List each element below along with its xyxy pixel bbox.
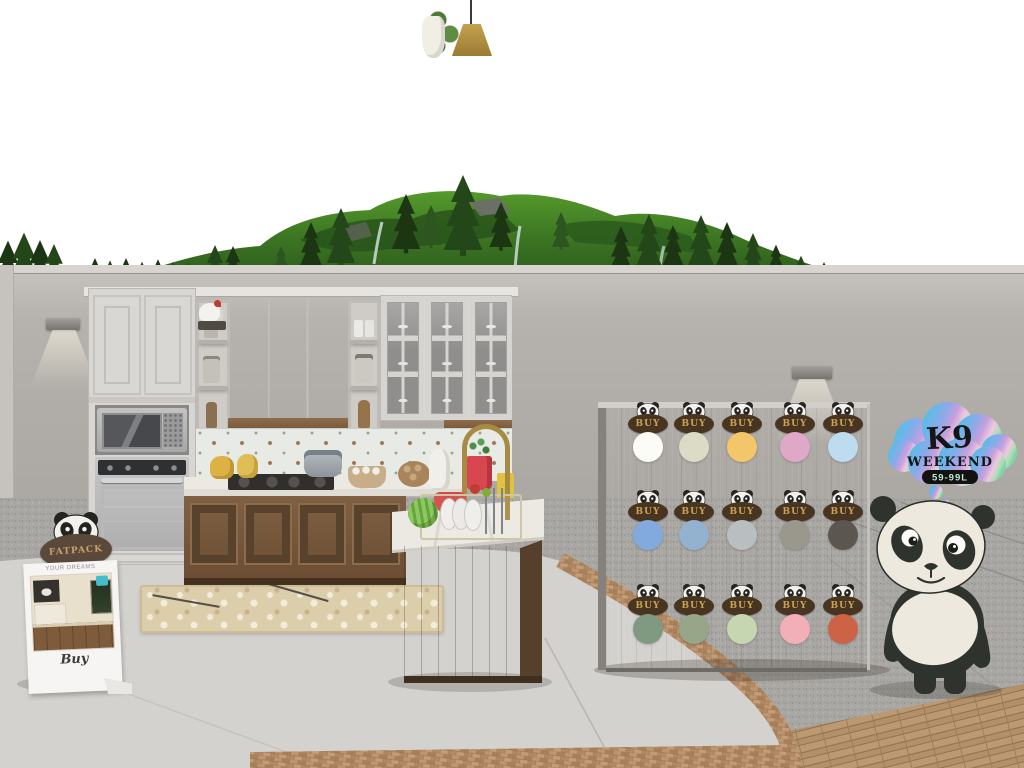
shelf-amber-bottle xyxy=(358,400,370,428)
buy-button-label: BUY xyxy=(730,507,755,517)
swatch-cell-3-3: BUY xyxy=(719,583,765,649)
buy-button-label: BUY xyxy=(636,601,661,611)
fatpack-badge-label: FATPACK xyxy=(49,544,104,558)
buy-button-label: BUY xyxy=(783,419,808,429)
buy-button-label: BUY xyxy=(831,601,856,611)
swatch-cell-1-5: BUY xyxy=(820,401,866,467)
board-left-edge xyxy=(598,404,606,670)
buy-button[interactable]: BUY xyxy=(674,414,714,434)
swatch-cell-2-3: BUY xyxy=(719,489,765,555)
vendor-buy-label[interactable]: Buy xyxy=(27,650,122,669)
buy-button-label: BUY xyxy=(636,507,661,517)
white-pitcher xyxy=(429,449,450,490)
shelf-crock xyxy=(355,354,373,383)
color-swatch[interactable] xyxy=(828,614,858,644)
wall-top-edge xyxy=(0,265,1024,274)
island-base xyxy=(404,546,520,678)
k9-title: K9 xyxy=(925,420,974,457)
swatch-cell-3-1: BUY xyxy=(625,583,671,649)
rooster-comb xyxy=(214,300,221,307)
yellow-canister xyxy=(210,456,234,479)
panda-mascot xyxy=(856,490,1018,696)
shelf-canister xyxy=(203,356,220,383)
buy-button[interactable]: BUY xyxy=(722,414,762,434)
swatch-cell-1-2: BUY xyxy=(671,401,717,467)
color-swatch[interactable] xyxy=(780,432,810,462)
island-side xyxy=(520,540,542,678)
hanging-white-jug xyxy=(422,16,445,58)
photo-badge xyxy=(96,575,108,586)
vendor-photo xyxy=(31,573,114,650)
microwave-niche xyxy=(95,405,189,455)
color-swatch[interactable] xyxy=(679,520,709,550)
buy-button-label: BUY xyxy=(831,419,856,429)
buy-button[interactable]: BUY xyxy=(722,502,762,522)
microwave xyxy=(97,408,187,452)
microwave-window xyxy=(102,413,162,449)
pantry-door-right xyxy=(144,295,192,395)
oven-handle xyxy=(101,478,183,483)
hanging-cord xyxy=(470,0,472,26)
swatch-cell-2-1: BUY xyxy=(625,489,671,555)
buy-button-label: BUY xyxy=(783,601,808,611)
cooking-pot xyxy=(304,450,342,477)
oven-control-panel xyxy=(98,460,186,475)
buy-button[interactable]: BUY xyxy=(628,596,668,616)
color-swatch[interactable] xyxy=(828,520,858,550)
buy-button[interactable]: BUY xyxy=(628,414,668,434)
toe-kick xyxy=(184,578,406,585)
glass-door xyxy=(426,297,468,419)
buy-button[interactable]: BUY xyxy=(775,414,815,434)
buy-button-label: BUY xyxy=(682,601,707,611)
bread-basket xyxy=(398,461,430,487)
color-swatch[interactable] xyxy=(727,520,757,550)
swatch-cell-1-1: BUY xyxy=(625,401,671,467)
corner-shelf-right xyxy=(348,300,380,432)
green-melon xyxy=(408,498,438,528)
color-swatch[interactable] xyxy=(727,432,757,462)
green-apple xyxy=(482,488,491,497)
color-swatch[interactable] xyxy=(828,432,858,462)
swatch-cell-3-2: BUY xyxy=(671,583,717,649)
color-swatch[interactable] xyxy=(633,432,663,462)
buy-button-label: BUY xyxy=(730,419,755,429)
photo-wall-art xyxy=(33,580,60,603)
buy-button-label: BUY xyxy=(783,507,808,517)
egg-basket xyxy=(348,466,386,488)
range-hood xyxy=(230,300,348,420)
buy-button-label: BUY xyxy=(682,507,707,517)
yellow-canister xyxy=(237,454,258,478)
buy-button[interactable]: BUY xyxy=(775,502,815,522)
glass-door xyxy=(470,297,512,419)
base-cabinets xyxy=(184,496,406,578)
swatch-cell-2-2: BUY xyxy=(671,489,717,555)
pantry-door-left xyxy=(93,295,141,395)
buy-button[interactable]: BUY xyxy=(775,596,815,616)
swatch-cell-1-4: BUY xyxy=(772,401,818,467)
buy-button[interactable]: BUY xyxy=(823,414,863,434)
shelf-jars-white xyxy=(365,320,374,337)
wall-light-left xyxy=(46,318,80,330)
color-swatch[interactable] xyxy=(780,614,810,644)
buy-button-label: BUY xyxy=(682,419,707,429)
background-hill xyxy=(0,150,880,280)
buy-button-label: BUY xyxy=(831,507,856,517)
color-swatch[interactable] xyxy=(679,614,709,644)
buy-button[interactable]: BUY xyxy=(628,502,668,522)
glass-cabinet xyxy=(380,295,512,421)
kitchen-rug xyxy=(140,585,444,633)
glass-door xyxy=(382,297,424,419)
microwave-controls xyxy=(163,413,183,447)
buy-button-label: BUY xyxy=(730,601,755,611)
buy-button[interactable]: BUY xyxy=(674,596,714,616)
red-apple xyxy=(470,484,480,494)
k9-subtitle: WEEKEND xyxy=(906,455,993,470)
swatch-cell-2-4: BUY xyxy=(772,489,818,555)
color-swatch[interactable] xyxy=(633,614,663,644)
photo-lower-cabinets xyxy=(33,621,114,650)
base-door xyxy=(244,503,292,565)
shelf-bottle xyxy=(206,402,217,428)
rooster-basket xyxy=(198,321,226,330)
shelf-jars-white xyxy=(354,320,363,337)
pantry-rail xyxy=(89,397,195,403)
island-toe-kick xyxy=(404,676,542,683)
viewport: FATPACK YOUR DREAMS Buy xyxy=(0,0,1024,768)
board-bottom-edge xyxy=(606,668,867,672)
color-swatch[interactable] xyxy=(780,520,810,550)
color-swatch[interactable] xyxy=(727,614,757,644)
buy-button[interactable]: BUY xyxy=(722,596,762,616)
k9-price: 59-99L xyxy=(932,473,968,484)
vendor-board: BUY BUY BUY xyxy=(598,402,870,672)
base-door xyxy=(298,503,346,565)
buy-button[interactable]: BUY xyxy=(674,502,714,522)
wall-light-right xyxy=(792,366,832,379)
fatpack-vendor-sign[interactable]: FATPACK YOUR DREAMS Buy xyxy=(18,510,136,696)
vendor-sign-board[interactable]: YOUR DREAMS Buy xyxy=(23,560,123,694)
buy-button-label: BUY xyxy=(636,419,661,429)
color-swatch[interactable] xyxy=(679,432,709,462)
color-swatch[interactable] xyxy=(633,520,663,550)
swatch-cell-1-3: BUY xyxy=(719,401,765,467)
vendor-sign-header: YOUR DREAMS xyxy=(23,563,117,573)
swatch-cell-3-4: BUY xyxy=(772,583,818,649)
base-door xyxy=(190,503,238,565)
